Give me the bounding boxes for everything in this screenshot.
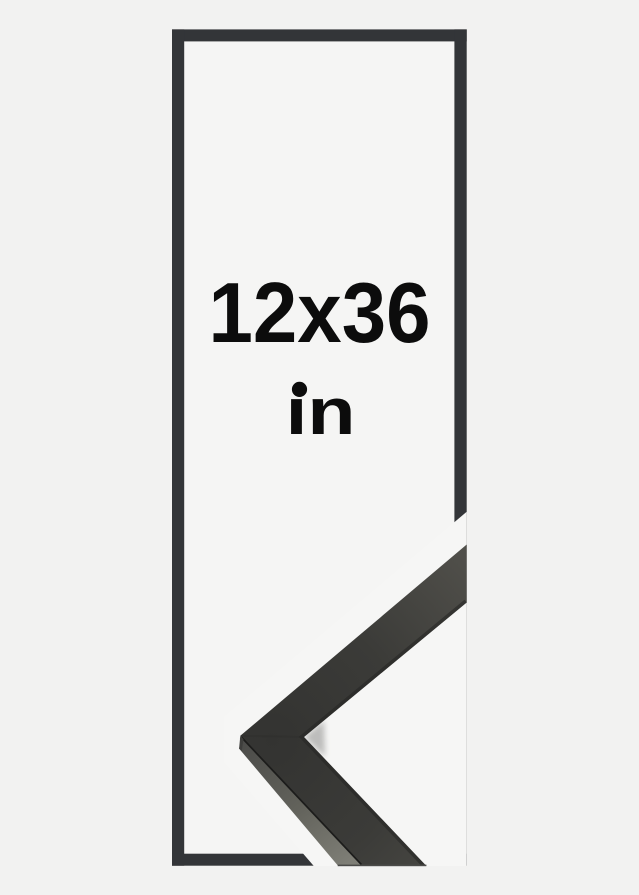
svg-text:12x36: 12x36 [209,266,431,361]
